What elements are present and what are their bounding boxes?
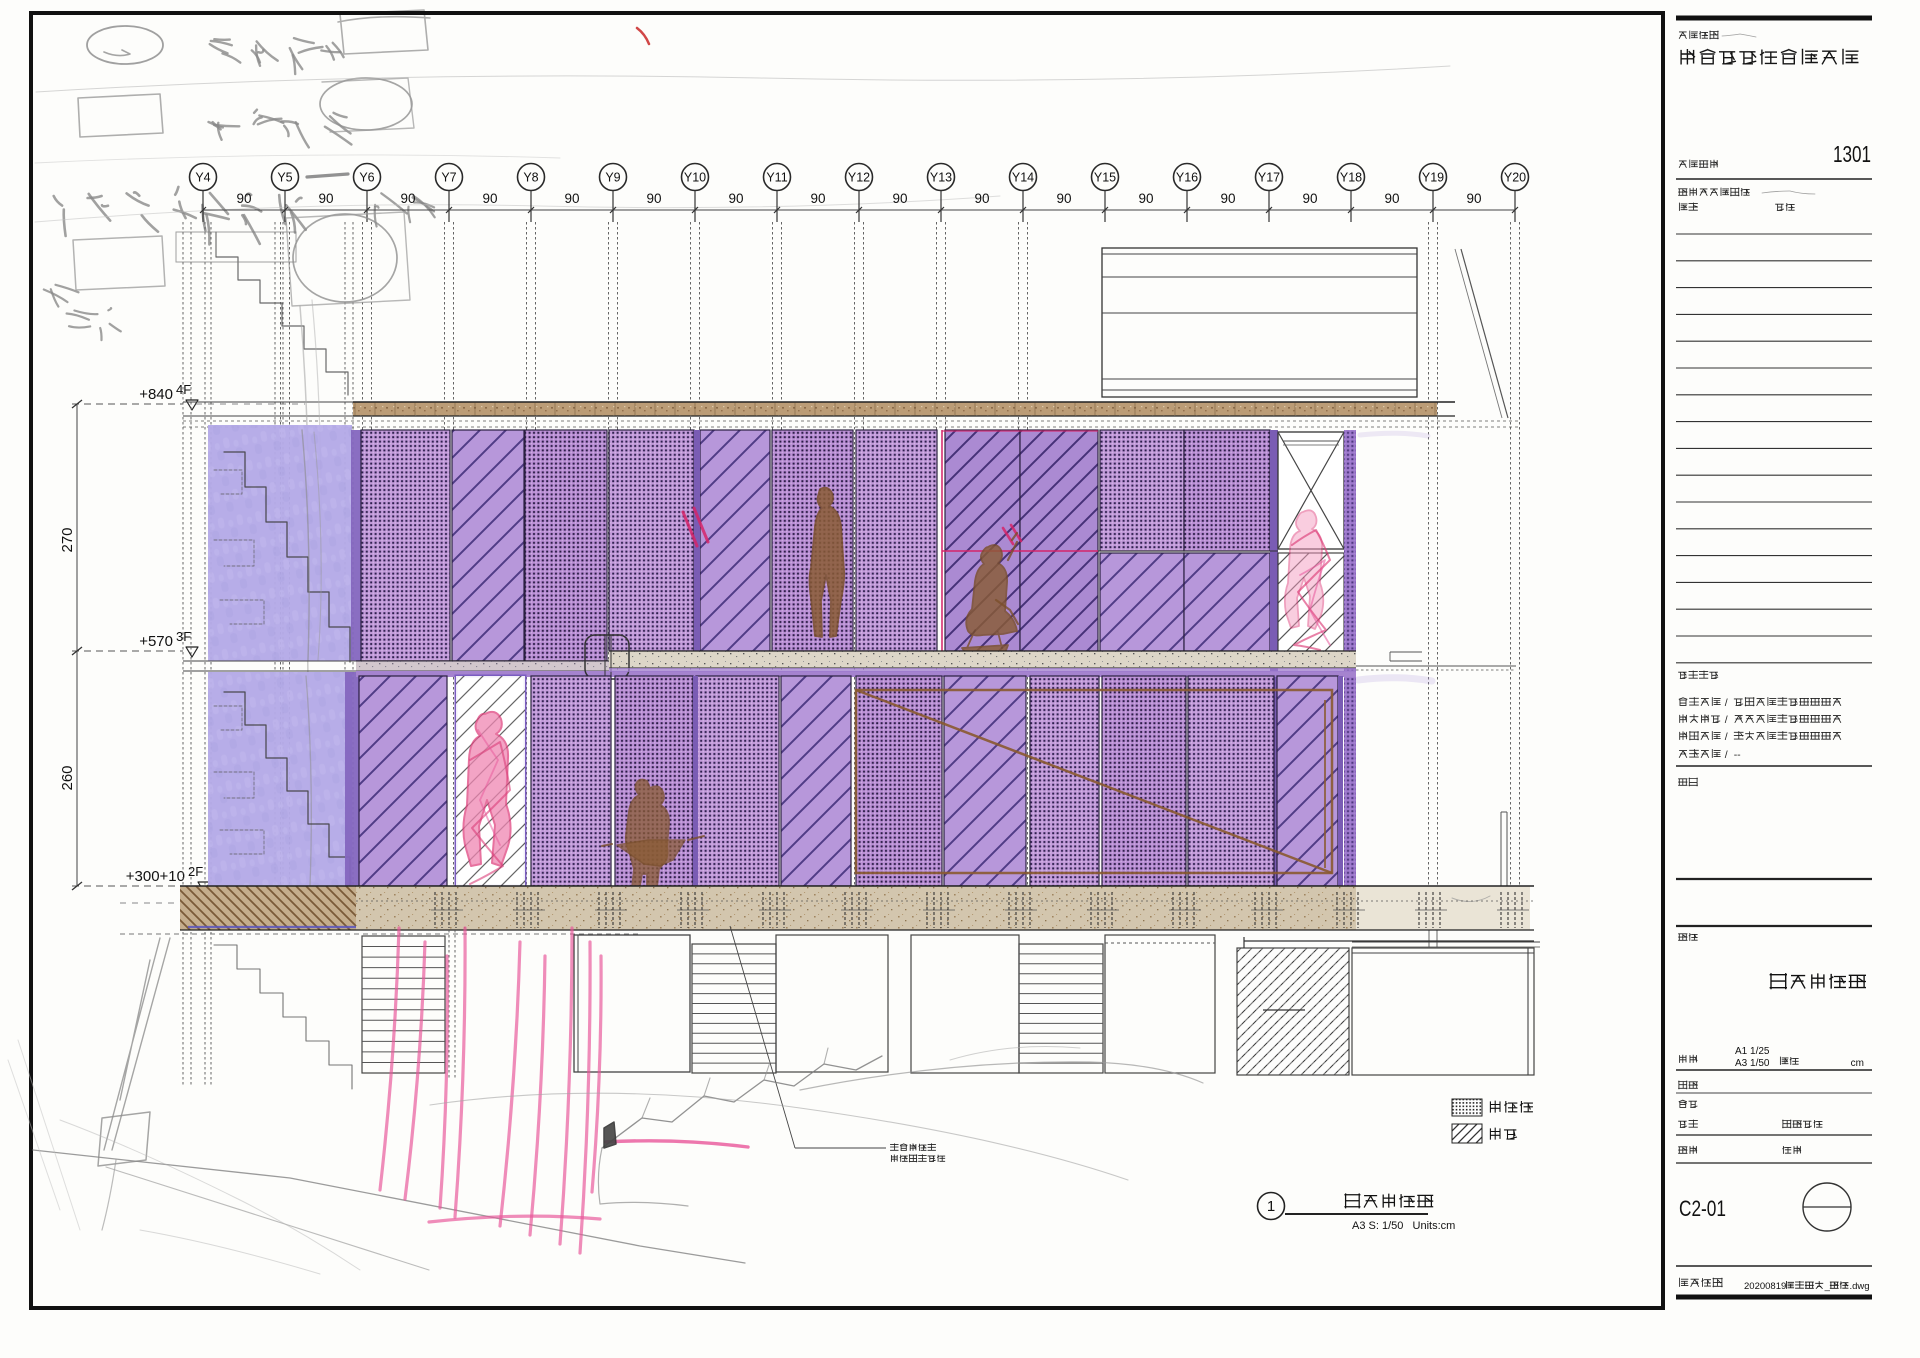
svg-text:--: -- [1734,749,1741,761]
svg-text:4F: 4F [176,382,191,397]
svg-text:Y7: Y7 [441,171,456,185]
svg-text:1301: 1301 [1833,141,1871,167]
svg-text:90: 90 [892,191,907,206]
svg-text:_: _ [1824,1281,1831,1292]
svg-text:/: / [1725,749,1728,761]
svg-text:Y10: Y10 [684,171,706,185]
svg-text:/: / [1725,731,1728,743]
svg-text:Y19: Y19 [1422,171,1444,185]
svg-text:Y15: Y15 [1094,171,1116,185]
svg-text:Y18: Y18 [1340,171,1362,185]
svg-text:Y16: Y16 [1176,171,1198,185]
svg-text:A1 1/25: A1 1/25 [1735,1046,1770,1057]
svg-text:90: 90 [236,191,251,206]
svg-text:90: 90 [482,191,497,206]
svg-text:Y11: Y11 [766,171,787,185]
svg-text:+570: +570 [139,633,173,650]
svg-text:C2-01: C2-01 [1679,1196,1726,1221]
svg-text:90: 90 [1220,191,1235,206]
svg-text:A3 1/50: A3 1/50 [1735,1058,1770,1069]
svg-text:.dwg: .dwg [1850,1281,1870,1292]
svg-text:260: 260 [59,765,76,790]
svg-text:90: 90 [564,191,579,206]
svg-text:/: / [1725,714,1728,726]
svg-text:270: 270 [59,527,76,552]
svg-text:90: 90 [1138,191,1153,206]
svg-text:90: 90 [1302,191,1317,206]
svg-text:3F: 3F [176,629,191,644]
svg-text:Y14: Y14 [1012,171,1034,185]
svg-text:90: 90 [1466,191,1481,206]
svg-text:90: 90 [728,191,743,206]
svg-text:Y9: Y9 [605,171,620,185]
svg-text:1: 1 [1267,1198,1275,1215]
svg-text:/: / [1725,697,1728,709]
svg-text:Y13: Y13 [930,171,952,185]
svg-text:+840: +840 [139,386,173,403]
svg-text:90: 90 [318,191,333,206]
svg-text:2F: 2F [188,864,203,879]
svg-text:Y8: Y8 [523,171,538,185]
svg-text:A3 S: 1/50 Units:cm: A3 S: 1/50 Units:cm [1352,1220,1455,1232]
svg-text:Y4: Y4 [195,171,210,185]
svg-text:90: 90 [810,191,825,206]
svg-text:+300+10: +300+10 [126,868,185,885]
svg-text:90: 90 [1384,191,1399,206]
svg-text:Y6: Y6 [359,171,374,185]
svg-text:90: 90 [646,191,661,206]
svg-text:90: 90 [1056,191,1071,206]
svg-text:90: 90 [974,191,989,206]
svg-text:Y5: Y5 [277,171,292,185]
svg-text:cm: cm [1851,1058,1864,1069]
svg-text:20200819: 20200819 [1744,1281,1786,1292]
svg-text:90: 90 [400,191,415,206]
svg-text:Y12: Y12 [848,171,870,185]
svg-text:Y17: Y17 [1258,171,1280,185]
svg-text:Y20: Y20 [1504,171,1526,185]
